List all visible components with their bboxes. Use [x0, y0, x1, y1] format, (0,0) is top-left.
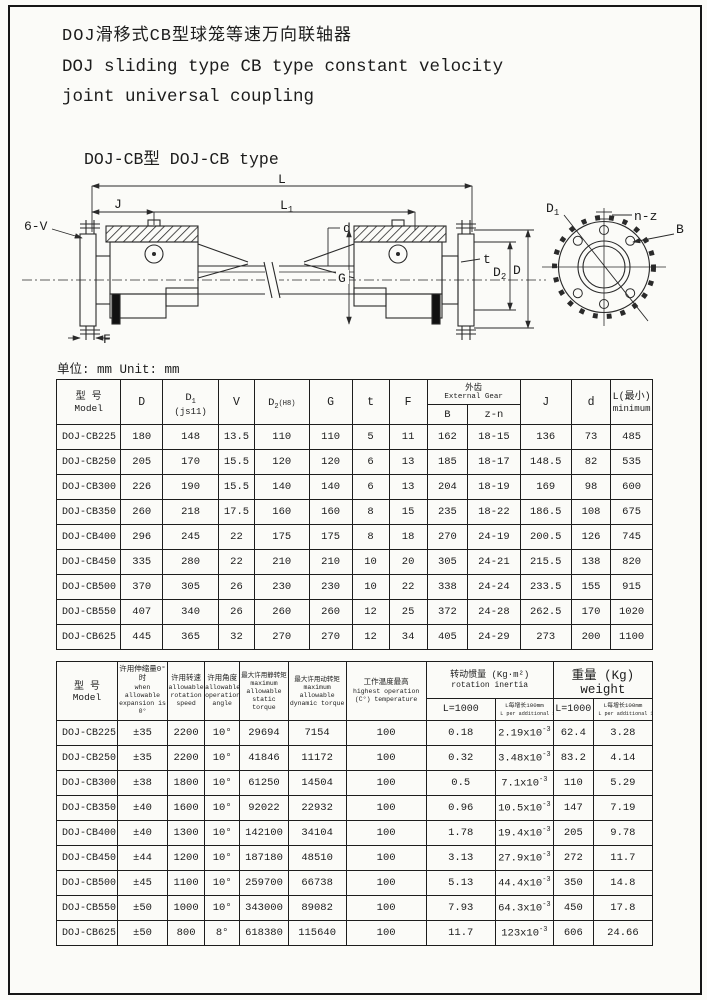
- cell-inertia-per-100mm: 19.4x10-3: [495, 821, 553, 846]
- side-view: [22, 220, 546, 340]
- cell-expansion: ±35: [117, 721, 167, 746]
- cell-F: 22: [389, 575, 427, 600]
- cell-d: 108: [571, 500, 610, 525]
- cell-speed: 1800: [168, 771, 205, 796]
- cell-B: 405: [427, 625, 468, 650]
- cell-d: 82: [571, 450, 610, 475]
- cell-D2: 120: [254, 450, 309, 475]
- cell-expansion: ±40: [117, 796, 167, 821]
- cell-J: 215.5: [520, 550, 571, 575]
- cell-angle: 10°: [205, 871, 240, 896]
- col-header-B: B: [427, 405, 468, 425]
- col-header-weight: 重量 (Kg) weight: [553, 662, 652, 699]
- dim-label-L: L: [278, 172, 286, 187]
- cell-B: 305: [427, 550, 468, 575]
- col-header-inertia-per-100mm: L每增长100mmL per additional 100mm: [495, 699, 553, 721]
- col-header-angle: 许用角度allowable operation angle: [205, 662, 240, 721]
- cell-inertia-L1000: 0.96: [426, 796, 495, 821]
- cell-static-torque: 187180: [240, 846, 288, 871]
- cell-G: 175: [309, 525, 352, 550]
- cell-angle: 10°: [205, 746, 240, 771]
- cell-D1: 148: [163, 425, 219, 450]
- cell-D1: 280: [163, 550, 219, 575]
- cell-t: 10: [352, 575, 389, 600]
- cell-G: 140: [309, 475, 352, 500]
- cell-speed: 1100: [168, 871, 205, 896]
- cell-temperature: 100: [346, 721, 426, 746]
- cell-zn: 18-22: [468, 500, 520, 525]
- cell-J: 136: [520, 425, 571, 450]
- cell-D2: 110: [254, 425, 309, 450]
- cell-D: 205: [121, 450, 163, 475]
- cell-D2: 140: [254, 475, 309, 500]
- cell-dynamic-torque: 89082: [288, 896, 346, 921]
- cell-inertia-L1000: 11.7: [426, 921, 495, 946]
- cell-F: 20: [389, 550, 427, 575]
- col-header-external-gear: 外齿External Gear: [427, 380, 520, 405]
- dimensions-table: 型 号Model D D1(js11) V D2(H8) G t F 外齿Ext…: [56, 379, 653, 650]
- cell-D: 296: [121, 525, 163, 550]
- cell-model: DOJ-CB350: [57, 500, 121, 525]
- cell-V: 26: [219, 600, 255, 625]
- col-header-rotation-inertia: 转动惯量 (Kg·m²)rotation inertia: [426, 662, 553, 699]
- dim-label-B: B: [676, 222, 684, 237]
- col-header-F: F: [389, 380, 427, 425]
- cell-zn: 18-15: [468, 425, 520, 450]
- col-header-static-torque: 最大许用静转矩maximum allowable static torqueN·…: [240, 662, 288, 721]
- unit-label: 单位: mm Unit: mm: [57, 358, 180, 377]
- cell-model: DOJ-CB550: [57, 600, 121, 625]
- cell-inertia-per-100mm: 123x10-3: [495, 921, 553, 946]
- col-header-L-min: L(最小)minimum: [611, 380, 653, 425]
- table-row: DOJ-CB550 ±50 1000 10° 343000 89082 100 …: [57, 896, 653, 921]
- cell-t: 12: [352, 625, 389, 650]
- cell-B: 204: [427, 475, 468, 500]
- cell-B: 270: [427, 525, 468, 550]
- cell-L-min: 600: [611, 475, 653, 500]
- cell-V: 17.5: [219, 500, 255, 525]
- cell-weight-L1000: 272: [553, 846, 593, 871]
- cell-expansion: ±50: [117, 921, 167, 946]
- cell-D: 180: [121, 425, 163, 450]
- cell-L-min: 675: [611, 500, 653, 525]
- table-row: DOJ-CB625 ±50 800 8° 618380 115640 100 1…: [57, 921, 653, 946]
- cell-d: 126: [571, 525, 610, 550]
- cell-F: 18: [389, 525, 427, 550]
- col-header-G: G: [309, 380, 352, 425]
- cell-D: 445: [121, 625, 163, 650]
- cell-expansion: ±44: [117, 846, 167, 871]
- cell-speed: 1300: [168, 821, 205, 846]
- page-title-en-line2: joint universal coupling: [62, 82, 503, 112]
- table-row: DOJ-CB450 335 280 22 210 210 10 20 305 2…: [57, 550, 653, 575]
- cell-static-torque: 618380: [240, 921, 288, 946]
- cell-L-min: 745: [611, 525, 653, 550]
- col-header-model: 型 号Model: [57, 380, 121, 425]
- col-header-model: 型 号Model: [57, 662, 118, 721]
- cell-speed: 2200: [168, 721, 205, 746]
- cell-speed: 2200: [168, 746, 205, 771]
- cell-model: DOJ-CB400: [57, 525, 121, 550]
- cell-weight-L1000: 110: [553, 771, 593, 796]
- cell-model: DOJ-CB300: [57, 475, 121, 500]
- cell-inertia-L1000: 7.93: [426, 896, 495, 921]
- cell-d: 138: [571, 550, 610, 575]
- cell-weight-per-100mm: 17.8: [593, 896, 652, 921]
- cell-weight-per-100mm: 7.19: [593, 796, 652, 821]
- cell-weight-per-100mm: 11.7: [593, 846, 652, 871]
- col-header-J: J: [520, 380, 571, 425]
- col-header-D1: D1(js11): [163, 380, 219, 425]
- cell-model: DOJ-CB625: [57, 921, 118, 946]
- cell-expansion: ±38: [117, 771, 167, 796]
- cell-d: 200: [571, 625, 610, 650]
- cell-B: 372: [427, 600, 468, 625]
- cell-D1: 245: [163, 525, 219, 550]
- table-row: DOJ-CB500 ±45 1100 10° 259700 66738 100 …: [57, 871, 653, 896]
- cell-D2: 260: [254, 600, 309, 625]
- col-header-dynamic-torque: 最大许用动转矩maximum allowable dynamic torqueN…: [288, 662, 346, 721]
- table-row: DOJ-CB225 ±35 2200 10° 29694 7154 100 0.…: [57, 721, 653, 746]
- bolt-hole: [573, 236, 582, 245]
- cell-angle: 10°: [205, 796, 240, 821]
- cell-model: DOJ-CB625: [57, 625, 121, 650]
- cell-temperature: 100: [346, 796, 426, 821]
- cell-inertia-L1000: 5.13: [426, 871, 495, 896]
- cell-expansion: ±50: [117, 896, 167, 921]
- cell-F: 13: [389, 475, 427, 500]
- cell-model: DOJ-CB225: [57, 721, 118, 746]
- cell-temperature: 100: [346, 921, 426, 946]
- cell-model: DOJ-CB250: [57, 450, 121, 475]
- dim-label-G: G: [338, 271, 346, 286]
- cell-model: DOJ-CB500: [57, 871, 118, 896]
- cell-temperature: 100: [346, 771, 426, 796]
- cell-L-min: 535: [611, 450, 653, 475]
- cell-zn: 24-24: [468, 575, 520, 600]
- cell-d: 155: [571, 575, 610, 600]
- cell-L-min: 1100: [611, 625, 653, 650]
- cell-weight-L1000: 62.4: [553, 721, 593, 746]
- cell-weight-per-100mm: 14.8: [593, 871, 652, 896]
- cell-weight-per-100mm: 3.28: [593, 721, 652, 746]
- cell-inertia-per-100mm: 64.3x10-3: [495, 896, 553, 921]
- table-row: DOJ-CB300 226 190 15.5 140 140 6 13 204 …: [57, 475, 653, 500]
- cell-speed: 1200: [168, 846, 205, 871]
- cell-inertia-per-100mm: 27.9x10-3: [495, 846, 553, 871]
- cell-D: 335: [121, 550, 163, 575]
- col-header-temperature: 工作温度最高highest operation (C°) temperature: [346, 662, 426, 721]
- cell-L-min: 1020: [611, 600, 653, 625]
- bolt-hole: [573, 289, 582, 298]
- cell-model: DOJ-CB300: [57, 771, 118, 796]
- cell-zn: 18-19: [468, 475, 520, 500]
- cell-dynamic-torque: 7154: [288, 721, 346, 746]
- cell-D2: 160: [254, 500, 309, 525]
- cell-angle: 10°: [205, 771, 240, 796]
- cell-D: 407: [121, 600, 163, 625]
- cell-inertia-L1000: 0.18: [426, 721, 495, 746]
- cell-model: DOJ-CB350: [57, 796, 118, 821]
- cell-angle: 10°: [205, 721, 240, 746]
- cell-model: DOJ-CB500: [57, 575, 121, 600]
- cell-D: 370: [121, 575, 163, 600]
- cell-V: 22: [219, 550, 255, 575]
- cell-inertia-L1000: 0.32: [426, 746, 495, 771]
- cell-weight-per-100mm: 4.14: [593, 746, 652, 771]
- cell-L-min: 820: [611, 550, 653, 575]
- cell-D2: 230: [254, 575, 309, 600]
- table-row: DOJ-CB400 ±40 1300 10° 142100 34104 100 …: [57, 821, 653, 846]
- dim-label-D: D: [513, 263, 521, 278]
- cell-speed: 1000: [168, 896, 205, 921]
- cell-inertia-per-100mm: 3.48x10-3: [495, 746, 553, 771]
- cell-inertia-per-100mm: 7.1x10-3: [495, 771, 553, 796]
- col-header-D2: D2(H8): [254, 380, 309, 425]
- cell-expansion: ±45: [117, 871, 167, 896]
- cell-inertia-L1000: 3.13: [426, 846, 495, 871]
- leader-6V: [52, 229, 82, 238]
- table-row: DOJ-CB350 ±40 1600 10° 92022 22932 100 0…: [57, 796, 653, 821]
- cell-dynamic-torque: 14504: [288, 771, 346, 796]
- cell-weight-per-100mm: 24.66: [593, 921, 652, 946]
- cell-model: DOJ-CB250: [57, 746, 118, 771]
- cell-D2: 175: [254, 525, 309, 550]
- cell-D1: 305: [163, 575, 219, 600]
- col-header-D: D: [121, 380, 163, 425]
- end-view: [542, 208, 674, 326]
- col-header-weight-per-100mm: L每增长100mmL per additional 100mm: [593, 699, 652, 721]
- cell-B: 162: [427, 425, 468, 450]
- cell-B: 338: [427, 575, 468, 600]
- cell-J: 273: [520, 625, 571, 650]
- cell-temperature: 100: [346, 871, 426, 896]
- cell-G: 230: [309, 575, 352, 600]
- cell-F: 11: [389, 425, 427, 450]
- cell-G: 260: [309, 600, 352, 625]
- cell-temperature: 100: [346, 846, 426, 871]
- cell-V: 15.5: [219, 450, 255, 475]
- cell-D2: 270: [254, 625, 309, 650]
- cell-F: 15: [389, 500, 427, 525]
- cell-G: 120: [309, 450, 352, 475]
- dim-label-F: F: [103, 332, 111, 347]
- cell-G: 110: [309, 425, 352, 450]
- table-row: DOJ-CB625 445 365 32 270 270 12 34 405 2…: [57, 625, 653, 650]
- catalog-page: DOJ滑移式CB型球笼等速万向联轴器 DOJ sliding type CB t…: [0, 0, 707, 1000]
- cell-zn: 24-28: [468, 600, 520, 625]
- cell-static-torque: 259700: [240, 871, 288, 896]
- col-header-d: d: [571, 380, 610, 425]
- cell-inertia-per-100mm: 44.4x10-3: [495, 871, 553, 896]
- cell-t: 8: [352, 525, 389, 550]
- cell-J: 262.5: [520, 600, 571, 625]
- cell-t: 6: [352, 475, 389, 500]
- cell-D2: 210: [254, 550, 309, 575]
- cell-D: 260: [121, 500, 163, 525]
- cell-J: 169: [520, 475, 571, 500]
- cell-dynamic-torque: 115640: [288, 921, 346, 946]
- col-header-weight-L1000: L=1000: [553, 699, 593, 721]
- cell-G: 210: [309, 550, 352, 575]
- cell-model: DOJ-CB225: [57, 425, 121, 450]
- cell-zn: 24-29: [468, 625, 520, 650]
- cell-V: 15.5: [219, 475, 255, 500]
- cell-weight-L1000: 450: [553, 896, 593, 921]
- cell-D1: 218: [163, 500, 219, 525]
- cell-model: DOJ-CB450: [57, 846, 118, 871]
- cell-expansion: ±35: [117, 746, 167, 771]
- cell-weight-L1000: 147: [553, 796, 593, 821]
- cell-static-torque: 142100: [240, 821, 288, 846]
- cell-temperature: 100: [346, 821, 426, 846]
- col-header-t: t: [352, 380, 389, 425]
- cell-L-min: 485: [611, 425, 653, 450]
- dim-label-t: t: [483, 252, 491, 267]
- cell-D1: 365: [163, 625, 219, 650]
- cell-B: 235: [427, 500, 468, 525]
- technical-drawing: L J L1 6-V d G t D2 D F: [6, 172, 702, 358]
- page-title-en-line1: DOJ sliding type CB type constant veloci…: [62, 52, 503, 82]
- table-row: DOJ-CB500 370 305 26 230 230 10 22 338 2…: [57, 575, 653, 600]
- cell-weight-per-100mm: 5.29: [593, 771, 652, 796]
- cell-d: 98: [571, 475, 610, 500]
- cell-temperature: 100: [346, 896, 426, 921]
- cell-dynamic-torque: 11172: [288, 746, 346, 771]
- table-row: DOJ-CB450 ±44 1200 10° 187180 48510 100 …: [57, 846, 653, 871]
- cell-static-torque: 29694: [240, 721, 288, 746]
- col-header-zn: z-n: [468, 405, 520, 425]
- page-title-zh: DOJ滑移式CB型球笼等速万向联轴器: [62, 22, 503, 52]
- col-header-V: V: [219, 380, 255, 425]
- model-type-subtitle: DOJ-CB型 DOJ-CB type: [84, 145, 279, 169]
- cell-weight-L1000: 83.2: [553, 746, 593, 771]
- cell-speed: 1600: [168, 796, 205, 821]
- cell-t: 5: [352, 425, 389, 450]
- table-row: DOJ-CB350 260 218 17.5 160 160 8 15 235 …: [57, 500, 653, 525]
- performance-table: 型 号Model 许用伸缩量0° 时when allowable expansi…: [56, 661, 653, 946]
- cell-V: 13.5: [219, 425, 255, 450]
- cell-weight-per-100mm: 9.78: [593, 821, 652, 846]
- cell-angle: 10°: [205, 896, 240, 921]
- table-row: DOJ-CB400 296 245 22 175 175 8 18 270 24…: [57, 525, 653, 550]
- cell-angle: 10°: [205, 821, 240, 846]
- cell-dynamic-torque: 22932: [288, 796, 346, 821]
- cell-F: 13: [389, 450, 427, 475]
- cell-dynamic-torque: 48510: [288, 846, 346, 871]
- table-row: DOJ-CB250 205 170 15.5 120 120 6 13 185 …: [57, 450, 653, 475]
- dim-label-d: d: [343, 221, 351, 236]
- cell-static-torque: 343000: [240, 896, 288, 921]
- cell-D1: 170: [163, 450, 219, 475]
- cell-inertia-per-100mm: 10.5x10-3: [495, 796, 553, 821]
- cell-inertia-L1000: 0.5: [426, 771, 495, 796]
- cell-F: 34: [389, 625, 427, 650]
- cell-B: 185: [427, 450, 468, 475]
- cell-weight-L1000: 350: [553, 871, 593, 896]
- cell-static-torque: 41846: [240, 746, 288, 771]
- cell-dynamic-torque: 66738: [288, 871, 346, 896]
- cell-F: 25: [389, 600, 427, 625]
- cell-model: DOJ-CB400: [57, 821, 118, 846]
- cell-t: 6: [352, 450, 389, 475]
- cell-J: 186.5: [520, 500, 571, 525]
- dim-label-6V: 6-V: [24, 219, 48, 234]
- cell-G: 160: [309, 500, 352, 525]
- cell-temperature: 100: [346, 746, 426, 771]
- cell-J: 200.5: [520, 525, 571, 550]
- cell-D1: 190: [163, 475, 219, 500]
- cell-D: 226: [121, 475, 163, 500]
- dim-label-nz: n-z: [634, 209, 657, 224]
- cell-V: 32: [219, 625, 255, 650]
- cell-J: 148.5: [520, 450, 571, 475]
- cell-static-torque: 61250: [240, 771, 288, 796]
- dim-label-J: J: [114, 197, 122, 212]
- leader-t: [461, 259, 480, 262]
- cell-expansion: ±40: [117, 821, 167, 846]
- cell-V: 26: [219, 575, 255, 600]
- cell-t: 8: [352, 500, 389, 525]
- bolt-hole: [626, 236, 635, 245]
- cell-zn: 18-17: [468, 450, 520, 475]
- table-row: DOJ-CB550 407 340 26 260 260 12 25 372 2…: [57, 600, 653, 625]
- cell-model: DOJ-CB550: [57, 896, 118, 921]
- cell-L-min: 915: [611, 575, 653, 600]
- cell-dynamic-torque: 34104: [288, 821, 346, 846]
- cell-inertia-per-100mm: 2.19x10-3: [495, 721, 553, 746]
- col-header-speed: 许用转速allowable rotation speed: [168, 662, 205, 721]
- cell-angle: 8°: [205, 921, 240, 946]
- cell-d: 73: [571, 425, 610, 450]
- cell-weight-L1000: 205: [553, 821, 593, 846]
- cell-t: 10: [352, 550, 389, 575]
- table-row: DOJ-CB300 ±38 1800 10° 61250 14504 100 0…: [57, 771, 653, 796]
- cell-weight-L1000: 606: [553, 921, 593, 946]
- cell-G: 270: [309, 625, 352, 650]
- cell-zn: 24-21: [468, 550, 520, 575]
- bolt-hole: [626, 289, 635, 298]
- page-title: DOJ滑移式CB型球笼等速万向联轴器 DOJ sliding type CB t…: [62, 22, 503, 112]
- table-row: DOJ-CB225 180 148 13.5 110 110 5 11 162 …: [57, 425, 653, 450]
- dim-label-L1: L1: [280, 198, 293, 215]
- cell-model: DOJ-CB450: [57, 550, 121, 575]
- cell-D1: 340: [163, 600, 219, 625]
- cell-V: 22: [219, 525, 255, 550]
- table-row: DOJ-CB250 ±35 2200 10° 41846 11172 100 0…: [57, 746, 653, 771]
- cell-d: 170: [571, 600, 610, 625]
- col-header-inertia-L1000: L=1000: [426, 699, 495, 721]
- col-header-expansion: 许用伸缩量0° 时when allowable expansion is 0°: [117, 662, 167, 721]
- cell-t: 12: [352, 600, 389, 625]
- cell-J: 233.5: [520, 575, 571, 600]
- cell-speed: 800: [168, 921, 205, 946]
- cell-angle: 10°: [205, 846, 240, 871]
- cell-inertia-L1000: 1.78: [426, 821, 495, 846]
- dim-label-D1: D1: [546, 201, 559, 218]
- cell-static-torque: 92022: [240, 796, 288, 821]
- cell-zn: 24-19: [468, 525, 520, 550]
